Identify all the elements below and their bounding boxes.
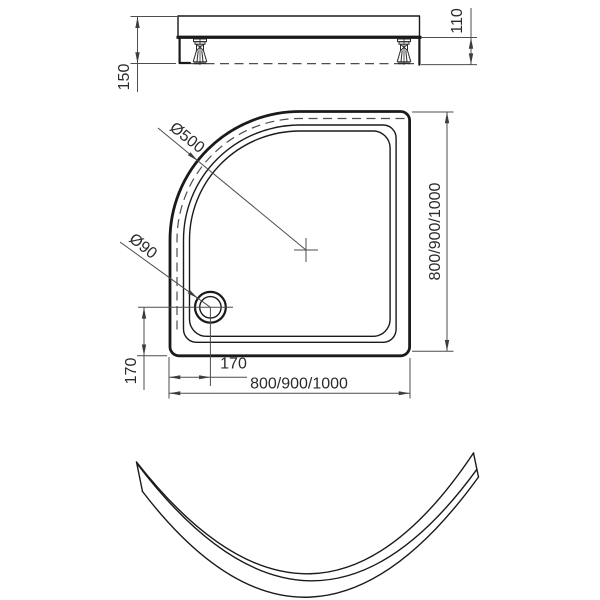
dimension-total-height: 150 xyxy=(116,17,177,93)
technical-drawing-page: 150 110 Ø500 Ø90 xyxy=(0,0,600,600)
dimension-label-width: 800/900/1000 xyxy=(250,376,348,393)
leader-drain-diameter: Ø90 xyxy=(120,230,210,307)
dimension-label-diameter-90: Ø90 xyxy=(126,230,160,262)
basin-floor-outline xyxy=(190,131,391,336)
tray-rim-profile xyxy=(178,16,420,37)
adjustable-foot-left xyxy=(193,38,207,65)
tray-outer-outline xyxy=(170,112,410,356)
dimension-drain-offset-x: 170 xyxy=(169,356,247,399)
side-elevation-view: 150 110 xyxy=(116,8,477,92)
drawing-canvas: 150 110 Ø500 Ø90 xyxy=(0,0,600,600)
dimension-label-170-vertical: 170 xyxy=(123,358,140,385)
plan-view: Ø500 Ø90 800/900/1000 170 xyxy=(120,112,454,399)
dimension-drain-offset-y: 170 xyxy=(123,307,167,390)
inner-rim-outline xyxy=(184,125,397,342)
dimension-label-110: 110 xyxy=(449,8,466,34)
dimension-label-150: 150 xyxy=(116,64,133,91)
panel-bottom-edge xyxy=(143,477,479,597)
hidden-base-outline xyxy=(177,119,405,332)
left-skirt-edge xyxy=(180,39,190,63)
dimension-depth: 800/900/1000 xyxy=(412,112,454,351)
panel-top-front-edge xyxy=(137,464,477,581)
adjustable-foot-right xyxy=(397,38,411,65)
dimension-label-depth: 800/900/1000 xyxy=(427,182,444,280)
dimension-label-170-horizontal: 170 xyxy=(220,356,247,373)
front-panel-view xyxy=(137,453,479,597)
dimension-underside-height: 110 xyxy=(421,8,477,65)
drain xyxy=(138,292,233,386)
panel-top-back-edge xyxy=(137,453,474,574)
dimension-width: 800/900/1000 xyxy=(169,358,410,399)
